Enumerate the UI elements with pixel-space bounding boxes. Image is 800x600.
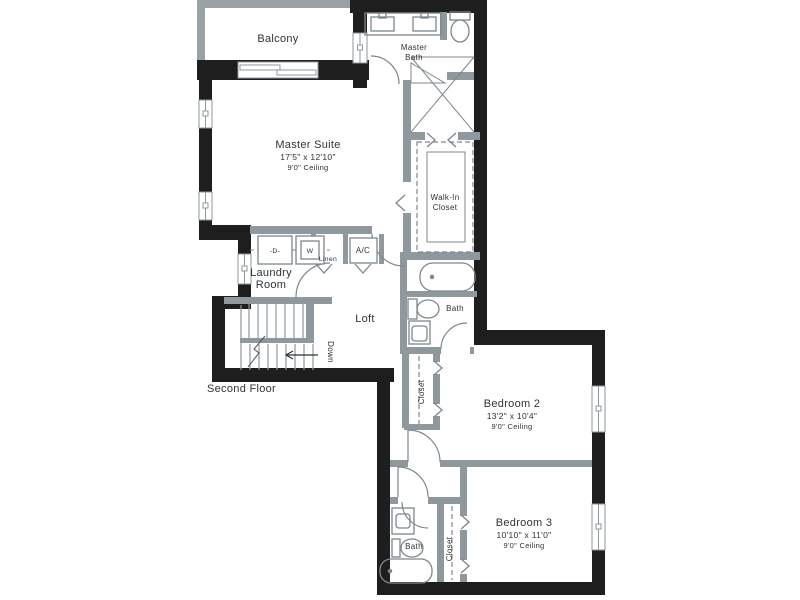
bedroom-3-dimensions: 10'10" x 11'0" [497,530,552,540]
walk-in-closet-label: Walk-In [431,193,460,202]
window-icon [592,504,605,550]
sink-icon [409,321,430,344]
closet-2-label: Closet [417,379,426,404]
balcony-walls [197,0,363,64]
bathtub-icon [420,263,475,291]
interior-walls [224,12,592,582]
bedroom-3-name: Bedroom 3 [496,517,553,529]
bedroom-3-ceiling: 9'0" Ceiling [503,541,544,550]
sink-icon [371,17,394,31]
bedroom-2-dimensions: 13'2" x 10'4" [487,411,538,421]
laundry-room-label: Room [256,279,287,291]
window-icon [199,192,212,220]
bath-3-label: Bath [405,542,423,551]
floor-title: Second Floor [207,383,276,395]
window-icon [238,254,251,284]
laundry-room-label: Laundry [250,267,292,279]
master-suite-ceiling: 9'0" Ceiling [287,163,328,172]
master-bath-label: Bath [405,53,423,62]
master-bath-label: Master [401,43,427,52]
window-icon [592,386,605,432]
shower-icon [411,57,474,132]
sink-icon [413,17,436,31]
bath-2-fixtures [408,263,475,344]
vanity-icon [365,13,441,35]
bath-2-label: Bath [446,304,464,313]
balcony-label: Balcony [257,33,298,45]
toilet-icon [408,299,439,319]
bedroom-2-name: Bedroom 2 [484,398,541,410]
linen-label: Linen [319,256,337,263]
ac-label: A/C [356,246,370,255]
window-icon [199,100,212,128]
bedroom-2-ceiling: 9'0" Ceiling [491,422,532,431]
floor-plan-svg: Balcony Master Bath Master Suite 17'5" x… [0,0,800,600]
stairs [241,304,313,370]
washer-label: W [307,248,314,255]
master-suite-name: Master Suite [275,139,340,151]
floor-plan: Balcony Master Bath Master Suite 17'5" x… [0,0,800,600]
loft-label: Loft [355,313,375,325]
dryer-label: -D- [270,248,280,255]
walk-in-closet-label: Closet [433,203,458,212]
master-suite-dimensions: 17'5" x 12'10" [280,152,336,162]
closet-3-label: Closet [445,536,454,561]
sliding-door-icon [238,62,318,78]
stairs-down-label: Down [326,341,335,363]
toilet-icon [450,12,470,42]
window-icon [353,33,367,63]
